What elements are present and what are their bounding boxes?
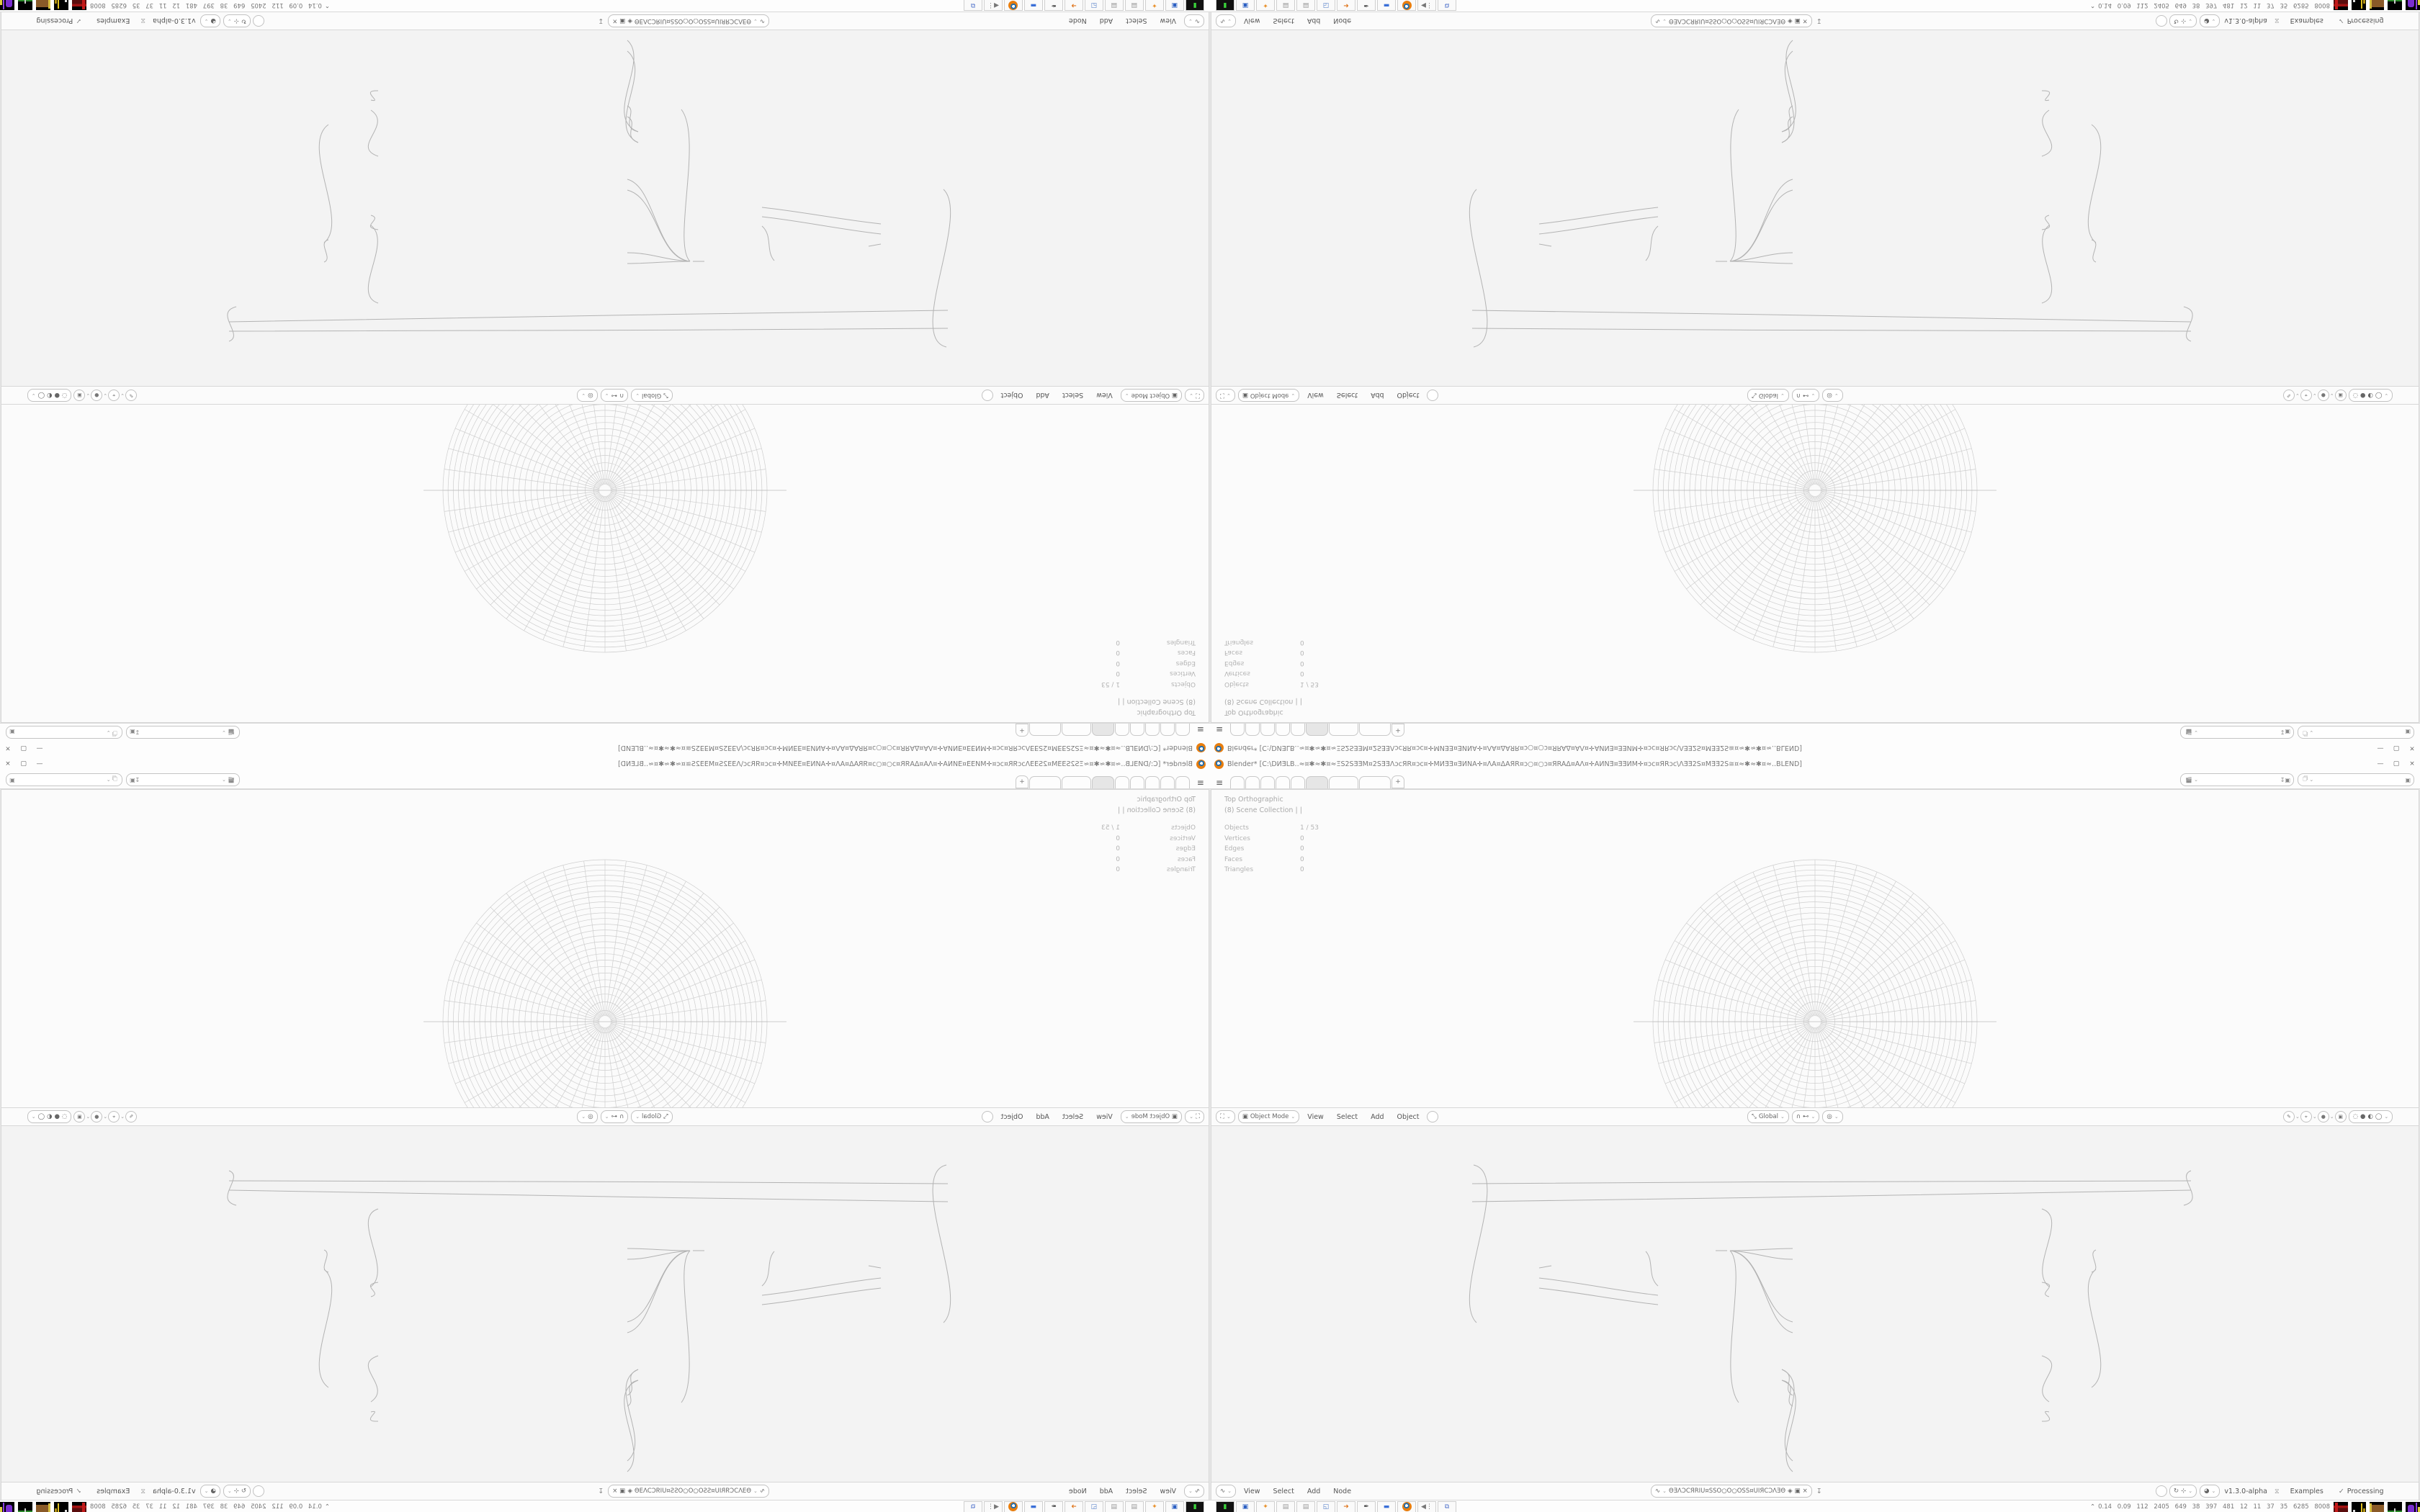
taskbar-icon-media[interactable]: ▮ (1186, 1501, 1204, 1512)
close-icon[interactable]: × (1803, 1488, 1808, 1495)
proportional-edit-group[interactable]: ◎⌄ (1822, 1110, 1842, 1123)
check-icon[interactable]: ✓ (2339, 1488, 2344, 1495)
copy-icon[interactable]: ▣ (2285, 729, 2290, 736)
scene-icon: 🎬︎ (228, 777, 235, 783)
tool-circle-button[interactable] (982, 1111, 994, 1122)
histogram-brown (36, 1, 50, 11)
menu-view[interactable]: View (1160, 1488, 1176, 1495)
gizmo-button[interactable]: ⌖ (2300, 1111, 2312, 1122)
overlay-group[interactable]: ◕⌄ (2200, 14, 2220, 27)
taskbar-icon-notes[interactable]: ▤ (1296, 1501, 1315, 1512)
taskbar-icon-display[interactable]: ⧉ (964, 1501, 982, 1512)
taskbar-icon-window[interactable]: ◱ (1085, 0, 1103, 12)
shading-mode-group[interactable]: ◌ ● ◐ ◯ ⌄ (27, 1110, 72, 1123)
scene-selector[interactable]: 🎬︎ ⌄ ↧ ▣ (2180, 773, 2294, 786)
object-mode-icon: ▣ (1242, 1113, 1248, 1120)
taskbar-icon-star[interactable]: ✦ (1145, 1501, 1164, 1512)
taskbar-icon-arrow[interactable]: ➜ (1065, 1501, 1083, 1512)
dot-icon: ◕ (2204, 17, 2209, 24)
menu-select[interactable]: Select (1337, 1113, 1358, 1121)
menu-select[interactable]: Select (1126, 1488, 1147, 1495)
taskbar-icon-bar[interactable]: ▬ (1377, 0, 1396, 12)
taskbar-icon-pen[interactable]: ✒ (1357, 1501, 1376, 1512)
pin-icon[interactable]: ↧ (2280, 777, 2285, 783)
workspace-tab-active[interactable] (1092, 724, 1114, 736)
node-editor[interactable]: ⌄⚙ Vertices 1▾ Edges 1▾ Polygons 1▾ Sepa… (1, 1125, 1209, 1482)
tool-circle-button[interactable] (1427, 390, 1438, 401)
node-tree-selector[interactable]: ∿⌄ ΘƎΛƆCЯRIU¤SSO○O○OSS¤UIЯCƆΛƎΘ ◈ ▣ × (1651, 1485, 1812, 1498)
view-layer-selector[interactable]: 🗇︎ ⌄ ▣ (6, 773, 122, 786)
taskbar-icon-bar[interactable]: ▬ (1024, 0, 1043, 12)
overlay-group[interactable]: ◕⌄ (200, 14, 220, 27)
menu-node[interactable]: Node (1333, 17, 1351, 25)
examples-menu[interactable]: Examples (2290, 1488, 2323, 1495)
menu-view[interactable]: View (1307, 1113, 1324, 1121)
shading-material-icon: ◐ (2367, 392, 2372, 399)
tool-circle-button[interactable] (1427, 1111, 1438, 1122)
copy-icon[interactable]: ▣ (619, 17, 625, 24)
editor-type-button[interactable]: ∿⌄ (1184, 1485, 1204, 1498)
workspace-tab[interactable] (1029, 776, 1061, 788)
node-wires (1, 1126, 1209, 1482)
examples-menu[interactable]: Examples (97, 17, 130, 25)
node-editor[interactable]: ⌄⚙ Vertices 1▾ Edges 1▾ Polygons 1▾ Sepa… (1211, 30, 2419, 387)
tool-circle-button[interactable] (982, 390, 994, 401)
taskbar-icon-media[interactable]: ▮ (1216, 1501, 1234, 1512)
view-layer-selector[interactable]: 🗇︎ ⌄ ▣ (2298, 773, 2414, 786)
taskbar-icon-star[interactable]: ✦ (1256, 0, 1275, 12)
workspace-tab[interactable] (1145, 724, 1160, 736)
pin-icon[interactable]: ↧ (598, 1488, 604, 1495)
menu-view[interactable]: View (1160, 17, 1176, 25)
pin-icon[interactable]: ↧ (135, 777, 140, 783)
proportional-icon: ◎ (588, 392, 593, 399)
proportional-edit-group[interactable]: ◎⌄ (577, 389, 597, 402)
xray-button[interactable]: ▣ (73, 390, 85, 401)
window-q-br: Blender* [C:\DИƎLB..≈¤✱≈✱¤≈ΞS2SƎƎM¤2SƎƎΛ… (1210, 756, 2420, 1512)
viewport-editor-icon: ⛶ (1220, 1113, 1224, 1120)
dna-icon: ⧖ (2275, 17, 2280, 25)
workspace-tab-active[interactable] (1306, 776, 1328, 788)
orientation-icon: ⤡ (1752, 1113, 1757, 1120)
workspace-tab[interactable] (1130, 724, 1144, 736)
shading-mode-group[interactable]: ◌ ● ◐ ◯ ⌄ (27, 389, 72, 402)
proportional-edit-group[interactable]: ◎⌄ (577, 1110, 597, 1123)
menu-add[interactable]: Add (1100, 1488, 1113, 1495)
copy-icon[interactable]: ▣ (130, 777, 135, 783)
workspace-tab[interactable] (1115, 724, 1129, 736)
viewport-collection-label: (8) Scene Collection | | (1080, 696, 1196, 707)
shading-mode-group[interactable]: ◌ ● ◐ ◯ ⌄ (2349, 389, 2393, 402)
menu-add[interactable]: Add (1036, 392, 1049, 400)
pin-icon[interactable]: ↧ (598, 17, 604, 25)
restore-button[interactable]: ▢ (16, 757, 32, 770)
taskbar-icon-save[interactable]: ▣ (1165, 0, 1184, 12)
shield-icon[interactable]: ◈ (1788, 1488, 1793, 1495)
taskbar-icon-window[interactable]: ◱ (1317, 1501, 1335, 1512)
workspace-tab[interactable] (1329, 724, 1358, 736)
histogram-red (2334, 1502, 2348, 1512)
taskbar-icon-window[interactable]: ◱ (1317, 0, 1335, 12)
proportional-edit-group[interactable]: ◎⌄ (1822, 389, 1842, 402)
workspace-tab[interactable] (1329, 776, 1358, 788)
processing-checkbox-label[interactable]: Processing (2347, 17, 2384, 25)
taskbar-icon-blender[interactable] (1397, 0, 1416, 12)
taskbar-icon-notes[interactable]: ▤ (1276, 1501, 1295, 1512)
xray-button[interactable]: ▣ (73, 1111, 85, 1122)
menu-view[interactable]: View (1096, 1113, 1113, 1121)
viewport-3d[interactable]: Top Orthographic (8) Scene Collection | … (1, 386, 1209, 723)
close-button[interactable]: × (0, 757, 16, 770)
scene-selector[interactable]: 🎬︎ ⌄ ↧ ▣ (126, 726, 240, 739)
viewport-3d[interactable]: Top Orthographic (8) Scene Collection | … (1, 789, 1209, 1126)
node-editor[interactable]: ⌄⚙ Vertices 1▾ Edges 1▾ Polygons 1▾ Sepa… (1, 30, 1209, 387)
empty-circle-button[interactable] (2156, 1485, 2167, 1497)
refresh-icon: ↻ (2174, 1488, 2179, 1495)
restore-button[interactable]: ▢ (16, 742, 32, 755)
tree-icon: ∿ (760, 1488, 765, 1495)
add-workspace-button[interactable]: + (1391, 775, 1404, 788)
close-icon[interactable]: × (612, 17, 617, 24)
node-editor-icon: ∿ (1220, 17, 1225, 24)
taskbar-icon-window[interactable]: ◱ (1085, 1501, 1103, 1512)
menu-select[interactable]: Select (1337, 392, 1358, 400)
menu-add[interactable]: Add (1307, 17, 1320, 25)
shading-rendered-icon: ◯ (2375, 392, 2383, 399)
xray-button[interactable]: ▣ (2335, 1111, 2347, 1122)
editor-type-button[interactable]: ∿⌄ (1184, 14, 1204, 27)
menu-node[interactable]: Node (1069, 1488, 1087, 1495)
orientation-dropdown[interactable]: ⤡ Global⌄ (1747, 1110, 1789, 1123)
menu-select[interactable]: Select (1062, 1113, 1083, 1121)
taskbar-icon-notes[interactable]: ▤ (1276, 0, 1295, 12)
gizmo-button[interactable]: ⌖ (2300, 390, 2312, 401)
copy-icon[interactable]: ▣ (2405, 729, 2411, 736)
menu-object[interactable]: Object (1397, 392, 1420, 400)
taskbar-icon-bar[interactable]: ▬ (1377, 1501, 1396, 1512)
hamburger-menu-icon[interactable]: ≡ (1197, 779, 1204, 786)
shading-mode-group[interactable]: ◌ ● ◐ ◯ ⌄ (2349, 1110, 2393, 1123)
workspace-tab[interactable] (1029, 724, 1061, 736)
status-bar: ▮ ▣ ✦ ▤ ▤ ◱ ➜ ✒ ▬ ◀⋮ ⧉ ⌃ 0.14 0.09 112 2… (1210, 1500, 2420, 1512)
copy-icon[interactable]: ▣ (619, 1488, 625, 1495)
editor-type-button[interactable]: ⛶⌄ (1216, 389, 1235, 402)
workspace-tab[interactable] (1145, 776, 1160, 788)
menu-object[interactable]: Object (1001, 392, 1023, 400)
minimize-button[interactable]: — (2372, 757, 2388, 770)
empty-circle-button[interactable] (253, 1485, 264, 1497)
empty-circle-button[interactable] (253, 15, 264, 27)
node-editor-icon: ∿ (1195, 17, 1200, 24)
menu-view[interactable]: View (1244, 1488, 1260, 1495)
overlay-group[interactable]: ◕⌄ (200, 1485, 220, 1498)
taskbar-icon-speaker[interactable]: ◀⋮ (1417, 0, 1436, 12)
hamburger-menu-icon[interactable]: ≡ (1216, 779, 1223, 786)
taskbar-icon-speaker[interactable]: ◀⋮ (1417, 1501, 1436, 1512)
taskbar-icon-blender[interactable] (1397, 1501, 1416, 1512)
shading-wireframe-icon: ◌ (62, 1113, 67, 1120)
scene-icon: 🎬︎ (2185, 729, 2192, 736)
workspace-tab[interactable] (1276, 724, 1290, 736)
taskbar-icon-blender[interactable] (1004, 1501, 1023, 1512)
taskbar-icon-display[interactable]: ⧉ (1438, 0, 1456, 12)
examples-menu[interactable]: Examples (97, 1488, 130, 1495)
add-workspace-button[interactable]: + (1391, 724, 1404, 737)
perf-arrow-icon: ⌃ (325, 2, 330, 9)
workspace-tab-active[interactable] (1306, 724, 1328, 736)
taskbar-icon-display[interactable]: ⧉ (1438, 1501, 1456, 1512)
gizmo-button[interactable]: ⌖ (108, 1111, 120, 1122)
taskbar-icon-save[interactable]: ▣ (1236, 0, 1255, 12)
scene-selector[interactable]: 🎬︎ ⌄ ↧ ▣ (2180, 726, 2294, 739)
copy-icon[interactable]: ▣ (1795, 17, 1801, 24)
menu-add[interactable]: Add (1307, 1488, 1320, 1495)
taskbar-icon-notes[interactable]: ▤ (1125, 1501, 1144, 1512)
taskbar-icon-save[interactable]: ▣ (1165, 1501, 1184, 1512)
histogram-purple (0, 1502, 14, 1512)
menu-add[interactable]: Add (1036, 1113, 1049, 1121)
workspace-tab[interactable] (1260, 776, 1275, 788)
hamburger-menu-icon[interactable]: ≡ (1216, 726, 1223, 733)
viewport-collection-label: (8) Scene Collection | | (1080, 805, 1196, 816)
processing-checkbox-label[interactable]: Processing (2347, 1488, 2384, 1495)
node-editor[interactable]: ⌄⚙ Vertices 1▾ Edges 1▾ Polygons 1▾ Sepa… (1211, 1125, 2419, 1482)
add-workspace-button[interactable]: + (1016, 724, 1028, 737)
editor-type-button[interactable]: ∿⌄ (1216, 1485, 1236, 1498)
blender-window: Blender* [C:\DИƎLB..≈¤✱≈✱¤≈ΞS2SƎƎM¤2SƎƎΛ… (0, 0, 1210, 756)
orientation-dropdown[interactable]: ⤡ Global⌄ (631, 1110, 673, 1123)
add-workspace-button[interactable]: + (1016, 775, 1028, 788)
taskbar-icon-arrow[interactable]: ➜ (1337, 0, 1355, 12)
overlays-button[interactable]: ● (91, 1111, 102, 1122)
perf-numbers: 0.14 0.09 112 2405 649 38 397 481 12 11 … (90, 2, 322, 9)
menu-view[interactable]: View (1307, 392, 1324, 400)
minimize-button[interactable]: — (32, 757, 48, 770)
shield-icon[interactable]: ◈ (627, 1488, 632, 1495)
mode-dropdown[interactable]: ▣ Object Mode⌄ (1238, 1110, 1299, 1123)
check-icon[interactable]: ✓ (76, 17, 81, 25)
minimize-button[interactable]: — (2372, 742, 2388, 755)
viewport-3d[interactable]: Top Orthographic (8) Scene Collection | … (1211, 789, 2419, 1126)
refresh-icon: ↻ (241, 17, 246, 24)
taskbar-icon-blender[interactable] (1004, 0, 1023, 12)
workspace-tab[interactable] (1230, 776, 1245, 788)
workspace-tab[interactable] (1260, 724, 1275, 736)
proportional-icon: ◎ (1827, 1113, 1832, 1120)
menu-select[interactable]: Select (1062, 392, 1083, 400)
chevron-down-icon: ⌄ (222, 777, 226, 783)
orientation-dropdown[interactable]: ⤡ Global⌄ (631, 389, 673, 402)
close-button[interactable]: × (2404, 742, 2420, 755)
node-tree-selector[interactable]: ∿⌄ ΘƎΛƆCЯRIU¤SSO○O○OSS¤UIЯCƆΛƎΘ ◈ ▣ × (608, 1485, 769, 1498)
minimize-button[interactable]: — (32, 742, 48, 755)
examples-menu[interactable]: Examples (2290, 17, 2323, 25)
workspace-tab[interactable] (1276, 776, 1290, 788)
copy-icon[interactable]: ▣ (2285, 777, 2290, 783)
taskbar-icon-arrow[interactable]: ➜ (1337, 1501, 1355, 1512)
snap-group[interactable]: ∩ ⊷⌄ (1792, 389, 1820, 402)
workspace-tab[interactable] (1160, 724, 1175, 736)
taskbar-icon-media[interactable]: ▮ (1216, 0, 1234, 12)
viewport-overlay: Top Orthographic (8) Scene Collection | … (1080, 637, 1196, 719)
workspace-tab[interactable] (1245, 724, 1260, 736)
mode-dropdown[interactable]: ▣ Object Mode⌄ (1238, 389, 1299, 402)
taskbar-icon-pen[interactable]: ✒ (1044, 0, 1063, 12)
histogram-yellow (2352, 1, 2366, 11)
processing-checkbox-label[interactable]: Processing (36, 1488, 73, 1495)
copy-icon[interactable]: ▣ (2405, 777, 2411, 783)
snap-group[interactable]: ∩ ⊷⌄ (1792, 1110, 1820, 1123)
shield-icon[interactable]: ◈ (627, 17, 632, 24)
snap-group[interactable]: ↻ ⊹⌄ (223, 14, 251, 27)
taskbar-icon-star[interactable]: ✦ (1256, 1501, 1275, 1512)
taskbar-icon-speaker[interactable]: ◀⋮ (984, 1501, 1003, 1512)
xray-button[interactable]: ▣ (2335, 390, 2347, 401)
workspace-tab[interactable] (1062, 776, 1091, 788)
workspace-tab[interactable] (1245, 776, 1260, 788)
menu-node[interactable]: Node (1333, 1488, 1351, 1495)
viewport-overlay: Top Orthographic (8) Scene Collection | … (1224, 794, 1340, 876)
taskbar-icon-media[interactable]: ▮ (1186, 0, 1204, 12)
processing-checkbox-label[interactable]: Processing (36, 17, 73, 25)
taskbar-icon-bar[interactable]: ▬ (1024, 1501, 1043, 1512)
workspace-tab[interactable] (1291, 724, 1305, 736)
overlays-button[interactable]: ● (2318, 1111, 2329, 1122)
node-tree-selector[interactable]: ∿⌄ ΘƎΛƆCЯRIU¤SSO○O○OSS¤UIЯCƆΛƎΘ ◈ ▣ × (608, 14, 769, 27)
viewport-header: ⛶⌄ ▣ Object Mode⌄ View Select Add Object… (1211, 386, 2419, 405)
annotate-button[interactable]: ✎ (2283, 390, 2295, 401)
shading-solid-icon: ● (2360, 1113, 2365, 1120)
workspace-tab[interactable] (1115, 776, 1129, 788)
menu-add[interactable]: Add (1371, 1113, 1384, 1121)
close-button[interactable]: × (0, 742, 16, 755)
pin-icon[interactable]: ↧ (1816, 1488, 1822, 1495)
menu-add[interactable]: Add (1371, 392, 1384, 400)
copy-icon[interactable]: ▣ (9, 777, 15, 783)
pin-icon[interactable]: ↧ (1816, 17, 1822, 25)
overlay-group[interactable]: ◕⌄ (2200, 1485, 2220, 1498)
menu-object[interactable]: Object (1397, 1113, 1420, 1121)
check-icon[interactable]: ✓ (2339, 17, 2344, 25)
pin-icon[interactable]: ↧ (2280, 729, 2285, 736)
menu-add[interactable]: Add (1100, 17, 1113, 25)
object-mode-icon: ▣ (1172, 1113, 1178, 1120)
snap-group[interactable]: ↻ ⊹⌄ (2169, 1485, 2197, 1498)
performance-readout: ⌃ 0.14 0.09 112 2405 649 38 397 481 12 1… (2090, 1502, 2420, 1512)
check-icon[interactable]: ✓ (76, 1488, 81, 1495)
workspace-tab[interactable] (1130, 776, 1144, 788)
taskbar-icon-display[interactable]: ⧉ (964, 0, 982, 12)
taskbar-icon-speaker[interactable]: ◀⋮ (984, 0, 1003, 12)
menu-select[interactable]: Select (1273, 17, 1294, 25)
close-button[interactable]: × (2404, 757, 2420, 770)
taskbar-icon-star[interactable]: ✦ (1145, 0, 1164, 12)
orientation-dropdown[interactable]: ⤡ Global⌄ (1747, 389, 1789, 402)
menu-object[interactable]: Object (1001, 1113, 1023, 1121)
viewport-statistics: Objects1 / 53 Vertices0 Edges0 Faces0 Tr… (1080, 823, 1196, 876)
taskbar-icon-notes[interactable]: ▤ (1125, 0, 1144, 12)
viewport-3d[interactable]: Top Orthographic (8) Scene Collection | … (1211, 386, 2419, 723)
viewport-header: ⛶⌄ ▣ Object Mode⌄ View Select Add Object… (1211, 1107, 2419, 1126)
copy-icon[interactable]: ▣ (1795, 1488, 1801, 1495)
workspace-tab[interactable] (1062, 724, 1091, 736)
menu-node[interactable]: Node (1069, 17, 1087, 25)
view-layer-selector[interactable]: 🗇︎ ⌄ ▣ (2298, 726, 2414, 739)
shield-icon[interactable]: ◈ (1788, 17, 1793, 24)
workspace-tab[interactable] (1359, 724, 1391, 736)
node-tree-selector[interactable]: ∿⌄ ΘƎΛƆCЯRIU¤SSO○O○OSS¤UIЯCƆΛƎΘ ◈ ▣ × (1651, 14, 1812, 27)
menu-select[interactable]: Select (1273, 1488, 1294, 1495)
node-editor-icon: ∿ (1220, 1488, 1225, 1495)
copy-icon[interactable]: ▣ (130, 729, 135, 736)
snap-group[interactable]: ∩ ⊷⌄ (601, 389, 629, 402)
snap-group[interactable]: ∩ ⊷⌄ (601, 1110, 629, 1123)
annotate-button[interactable]: ✎ (125, 1111, 137, 1122)
snap-group[interactable]: ↻ ⊹⌄ (2169, 14, 2197, 27)
taskbar-icon-arrow[interactable]: ➜ (1065, 0, 1083, 12)
annotate-button[interactable]: ✎ (2283, 1111, 2295, 1122)
layers-icon: 🗇︎ (112, 727, 117, 737)
mode-dropdown[interactable]: ▣ Object Mode⌄ (1121, 389, 1182, 402)
taskbar-icon-pen[interactable]: ✒ (1357, 0, 1376, 12)
magnet-icon: ∩ (1796, 392, 1801, 399)
empty-circle-button[interactable] (2156, 15, 2167, 27)
close-icon[interactable]: × (612, 1488, 617, 1495)
restore-button[interactable]: ▢ (2388, 757, 2404, 770)
taskbar-icon-save[interactable]: ▣ (1236, 1501, 1255, 1512)
scene-icon: 🎬︎ (228, 729, 235, 736)
editor-type-button[interactable]: ⛶⌄ (1216, 1110, 1235, 1123)
workspace-tab[interactable] (1175, 724, 1190, 736)
menu-view[interactable]: View (1244, 17, 1260, 25)
taskbar-icon-notes[interactable]: ▤ (1105, 0, 1124, 12)
menu-view[interactable]: View (1096, 392, 1113, 400)
workspace-tab[interactable] (1175, 776, 1190, 788)
annotate-button[interactable]: ✎ (125, 390, 137, 401)
dna-icon: ⧖ (140, 1488, 145, 1495)
viewport-view-label: Top Orthographic (1080, 707, 1196, 718)
workspace-tab[interactable] (1230, 724, 1245, 736)
snap-group[interactable]: ↻ ⊹⌄ (223, 1485, 251, 1498)
copy-icon[interactable]: ▣ (9, 729, 15, 736)
workspace-tab[interactable] (1359, 776, 1391, 788)
overlays-button[interactable]: ● (2318, 390, 2329, 401)
pin-icon[interactable]: ↧ (135, 729, 140, 736)
refresh-icon: ↻ (241, 1488, 246, 1495)
mode-dropdown[interactable]: ▣ Object Mode⌄ (1121, 1110, 1182, 1123)
taskbar-icon-notes[interactable]: ▤ (1105, 1501, 1124, 1512)
editor-type-button[interactable]: ⛶⌄ (1185, 389, 1204, 402)
viewport-statistics: Objects1 / 53 Vertices0 Edges0 Faces0 Tr… (1080, 637, 1196, 690)
editor-type-button[interactable]: ∿⌄ (1216, 14, 1236, 27)
overlays-button[interactable]: ● (91, 390, 102, 401)
workspace-tab[interactable] (1160, 776, 1175, 788)
menu-select[interactable]: Select (1126, 17, 1147, 25)
status-bar: ▮ ▣ ✦ ▤ ▤ ◱ ➜ ✒ ▬ ◀⋮ ⧉ ⌃ 0.14 0.09 112 2… (0, 0, 1210, 12)
hamburger-menu-icon[interactable]: ≡ (1197, 726, 1204, 733)
view-layer-selector[interactable]: 🗇︎ ⌄ ▣ (6, 726, 122, 739)
node-editor-header: ∿⌄ View Select Add Node ∿⌄ ΘƎΛƆCЯRIU¤SSO… (1211, 1482, 2419, 1500)
workspace-tab[interactable] (1291, 776, 1305, 788)
restore-button[interactable]: ▢ (2388, 742, 2404, 755)
taskbar-icon-pen[interactable]: ✒ (1044, 1501, 1063, 1512)
workspace-tab-active[interactable] (1092, 776, 1114, 788)
editor-type-button[interactable]: ⛶⌄ (1185, 1110, 1204, 1123)
close-icon[interactable]: × (1803, 17, 1808, 24)
taskbar-icon-notes[interactable]: ▤ (1296, 0, 1315, 12)
gizmo-button[interactable]: ⌖ (108, 390, 120, 401)
scene-selector[interactable]: 🎬︎ ⌄ ↧ ▣ (126, 773, 240, 786)
